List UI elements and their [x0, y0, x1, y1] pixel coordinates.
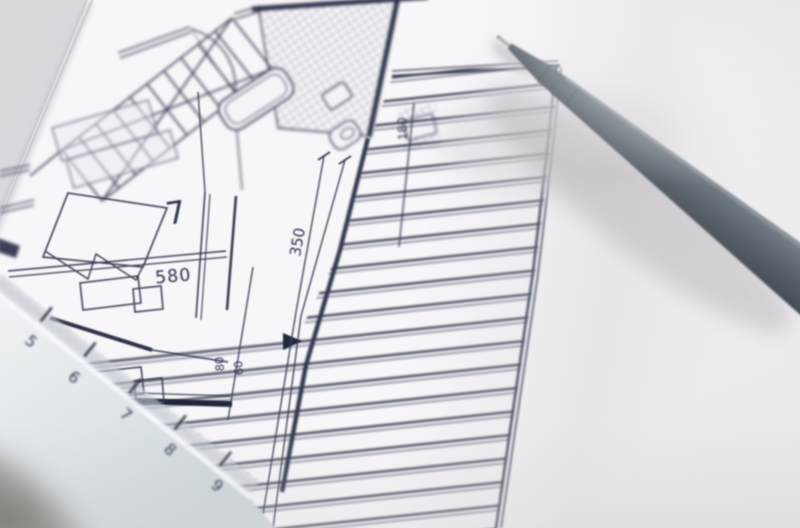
dimension-label-80: 80 — [212, 356, 227, 372]
photo-architectural-plan: 180 — [0, 0, 800, 528]
dimension-label-180: 180 — [395, 117, 410, 141]
dimension-label-580: 580 — [154, 265, 192, 288]
blueprint-photo-svg: 180 — [0, 0, 800, 528]
dimension-label-60: 60 — [231, 360, 246, 376]
